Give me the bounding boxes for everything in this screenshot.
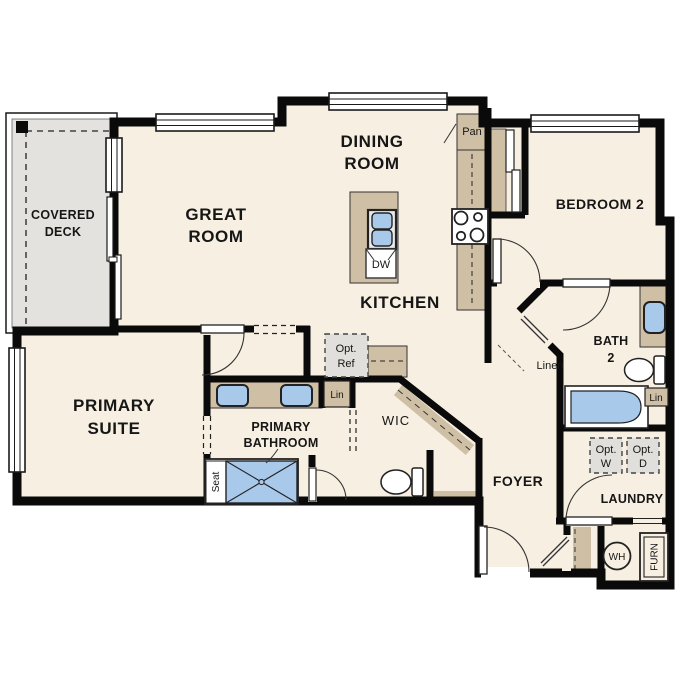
label-opt-dryer-1: Opt.	[633, 444, 654, 456]
label-opt-washer-2: W	[601, 458, 612, 470]
floor-plan: COVERED DECK GREAT ROOM DINING ROOM KITC…	[0, 0, 687, 687]
bedroom2-door-leaf	[493, 239, 501, 283]
opt-ref-box	[325, 334, 368, 377]
room-label-primary-suite-1: PRIMARY	[73, 396, 155, 415]
label-dishwasher: DW	[372, 259, 391, 271]
bath2-sink	[644, 302, 665, 333]
bedroom2-closet-shelf	[491, 129, 506, 213]
bath2-tub-basin	[571, 391, 641, 423]
island-sink-basin-1	[372, 213, 392, 229]
label-pantry: Pan	[462, 126, 482, 138]
room-label-kitchen: KITCHEN	[360, 293, 440, 312]
great-room-window	[156, 114, 274, 131]
label-lin-bath2: Lin	[649, 393, 662, 404]
room-label-primary-suite-2: SUITE	[87, 419, 140, 438]
room-label-foyer: FOYER	[493, 473, 543, 489]
bath2-door-leaf	[563, 279, 610, 287]
room-label-primary-bathroom-2: BATHROOM	[243, 436, 318, 450]
label-shower-seat: Seat	[211, 471, 222, 492]
room-label-primary-bathroom-1: PRIMARY	[251, 420, 311, 434]
label-opt-ref-2: Ref	[337, 358, 355, 370]
covered-deck	[6, 113, 117, 333]
bedroom2-window	[531, 115, 639, 132]
primary-sink-1	[217, 385, 248, 406]
suite-door-leaf	[201, 325, 244, 333]
front-door-gap	[481, 567, 530, 579]
deck-window	[106, 138, 122, 192]
laundry-door-leaf	[566, 517, 612, 525]
label-linen: Linen	[537, 360, 564, 372]
room-label-laundry: LAUNDRY	[601, 492, 664, 506]
primary-toilet	[381, 468, 423, 496]
bedroom2-door-gap	[497, 278, 540, 288]
mech-opening-gap	[633, 516, 662, 526]
label-opt-dryer-2: D	[639, 458, 647, 470]
label-opt-washer-1: Opt.	[596, 444, 617, 456]
bedroom2-closet-door-2	[512, 170, 520, 212]
label-opt-ref-1: Opt.	[336, 343, 357, 355]
bath2-tub	[565, 386, 648, 428]
room-label-wic: WIC	[382, 413, 410, 428]
label-water-heater: WH	[609, 552, 626, 563]
room-label-great-room-2: ROOM	[188, 227, 243, 246]
front-door-leaf	[479, 526, 487, 574]
room-label-great-room-1: GREAT	[185, 205, 246, 224]
cooktop	[452, 209, 488, 244]
room-label-dining-room-1: DINING	[340, 132, 403, 151]
room-label-bedroom2: BEDROOM 2	[556, 196, 644, 212]
room-label-covered-deck-1: COVERED	[31, 208, 95, 222]
room-label-covered-deck-2: DECK	[45, 225, 82, 239]
toilet-nook-leaf	[309, 468, 316, 501]
bedroom2-closet-door-1	[506, 130, 514, 172]
room-label-bath2-2: 2	[607, 351, 614, 365]
room-label-bath2-1: BATH	[594, 334, 629, 348]
bath2-toilet	[625, 356, 666, 384]
island-sink-basin-2	[372, 230, 392, 246]
primary-suite-window	[9, 348, 25, 472]
dining-room-window	[329, 93, 447, 110]
primary-sink-2	[281, 385, 312, 406]
label-furnace: FURN	[650, 543, 661, 571]
deck-post	[16, 121, 28, 133]
deck-surface	[12, 119, 113, 328]
room-label-dining-room-2: ROOM	[344, 154, 399, 173]
entry-closet-shelf	[573, 527, 591, 571]
label-lin-primary: Lin	[330, 390, 343, 401]
floor-plan-drawing: COVERED DECK GREAT ROOM DINING ROOM KITC…	[0, 0, 687, 687]
